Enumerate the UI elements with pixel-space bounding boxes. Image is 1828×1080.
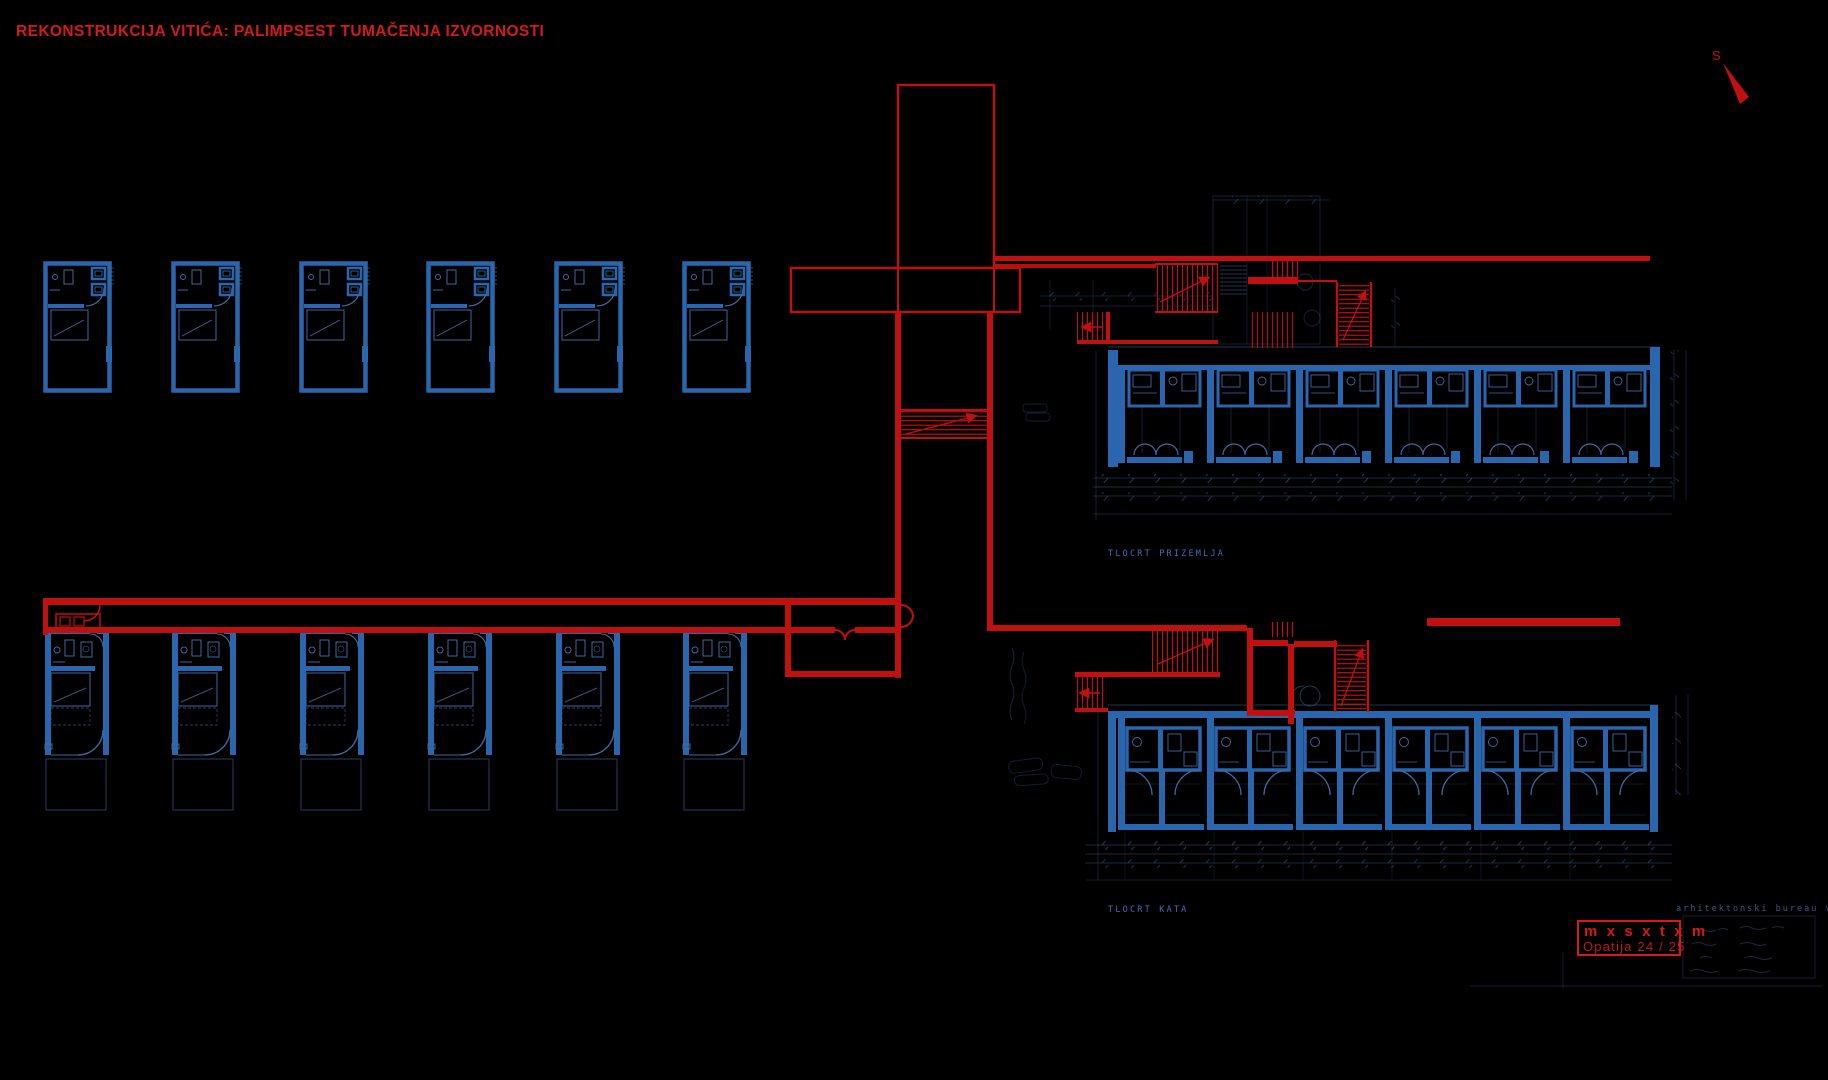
- room-module: [1385, 365, 1474, 463]
- stamp-line1: m x s x t x m: [1584, 923, 1708, 940]
- upper-floor-plan: TLOCRT PRIZEMLJA: [1093, 347, 1686, 559]
- bottom-unit-row: [45, 628, 747, 810]
- stamp-line2: Opatija 24 / 25: [1583, 939, 1686, 954]
- room-module: [1296, 718, 1382, 830]
- upper-plan-label: TLOCRT PRIZEMLJA: [1108, 549, 1225, 559]
- stair-shaft: [785, 312, 993, 678]
- guide-bar-right: [1427, 618, 1620, 626]
- room-module: [1296, 365, 1385, 463]
- room-module: [1563, 365, 1652, 463]
- title-block: arhitektonski bureau vitić m x s x t x m…: [1578, 903, 1828, 978]
- room-unit: [429, 264, 498, 391]
- top-unit-row: [46, 264, 754, 391]
- compass: S: [1712, 48, 1749, 104]
- furniture-sketch-lower: [1008, 757, 1082, 786]
- room-module: [1207, 365, 1296, 463]
- room-unit: [45, 628, 109, 810]
- room-module: [1118, 718, 1204, 830]
- stamp: m x s x t x m Opatija 24 / 25: [1578, 921, 1708, 955]
- guide-line-upper: [994, 256, 1650, 261]
- room-unit: [46, 264, 115, 391]
- furniture-sketch-upper: [1023, 404, 1050, 421]
- room-unit: [300, 628, 364, 810]
- lower-floor-plan: TLOCRT KATA: [1085, 686, 1688, 915]
- room-module: [1385, 718, 1471, 830]
- room-unit: [174, 264, 243, 391]
- compass-needle-icon: [1723, 63, 1749, 104]
- room-module: [1563, 718, 1649, 830]
- room-unit: [428, 628, 492, 810]
- poster-title: REKONSTRUKCIJA VITIĆA: PALIMPSEST TUMAČE…: [16, 22, 544, 40]
- room-unit: [556, 628, 620, 810]
- bureau-name: arhitektonski bureau vitić: [1676, 903, 1828, 914]
- poster-canvas: TLOCRT PRIZEMLJA: [0, 0, 1828, 1080]
- room-module: [1474, 718, 1560, 830]
- drawing-layer: TLOCRT PRIZEMLJA: [0, 0, 1828, 1080]
- blueprint-underlay: [1008, 196, 1822, 988]
- room-unit: [683, 628, 747, 810]
- room-module: [1118, 365, 1207, 463]
- room-unit: [685, 264, 754, 391]
- lower-stairs-red: [1075, 622, 1368, 724]
- compass-label: S: [1712, 48, 1721, 63]
- room-unit: [557, 264, 626, 391]
- room-unit: [302, 264, 371, 391]
- room-module: [1207, 718, 1293, 830]
- room-unit: [172, 628, 236, 810]
- entry-tower: [791, 85, 1020, 312]
- lower-plan-label: TLOCRT KATA: [1108, 905, 1189, 915]
- room-module: [1474, 365, 1563, 463]
